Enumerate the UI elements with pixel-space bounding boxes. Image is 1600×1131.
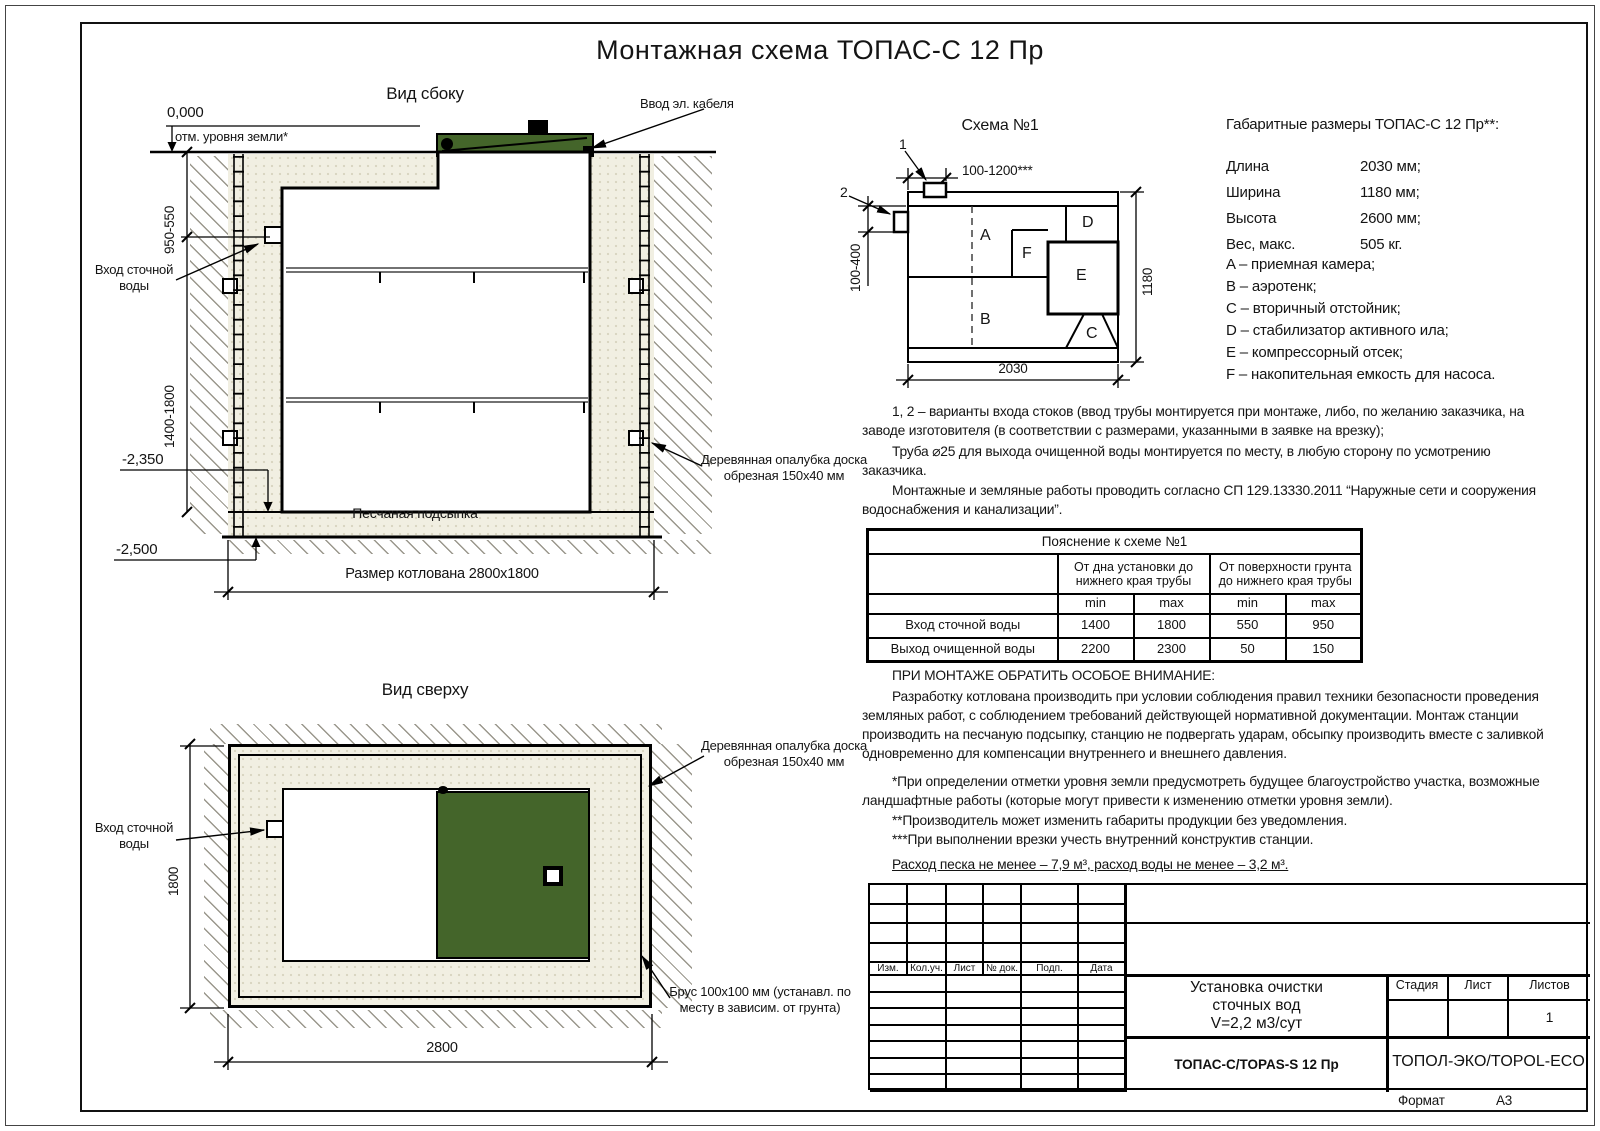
sideview-lid-cap bbox=[528, 120, 548, 134]
legend-a: A – приемная камера; bbox=[1226, 256, 1375, 274]
note-variants: 1, 2 – варианты входа стоков (ввод трубы… bbox=[862, 402, 1556, 440]
table-row: Вход сточной воды 1400 1800 550 950 bbox=[868, 614, 1362, 638]
sideview-stub-left-2 bbox=[222, 430, 238, 446]
table-min2-header: min bbox=[1210, 594, 1286, 614]
doc-title-line1: Установка очистки bbox=[1126, 979, 1387, 997]
spec-label-weight: Вес, макс. bbox=[1226, 236, 1295, 254]
table-blank-cell bbox=[868, 594, 1058, 614]
schema-dim-top: 100-1200*** bbox=[962, 163, 1033, 179]
row2-label: Выход очищенной воды bbox=[868, 638, 1058, 662]
beam-label: Брус 100x100 мм (устанавл. по месту в за… bbox=[662, 984, 858, 1016]
table-row: Выход очищенной воды 2200 2300 50 150 bbox=[868, 638, 1362, 662]
attention-body: Разработку котлована производить при усл… bbox=[862, 687, 1556, 763]
dim-2800: 2800 bbox=[230, 1040, 654, 1058]
table-min1-header: min bbox=[1058, 594, 1134, 614]
col-koluch: Кол.уч. bbox=[908, 963, 947, 976]
spec-value-weight: 505 кг. bbox=[1360, 236, 1402, 254]
sideview-stub-right-1 bbox=[628, 278, 644, 294]
model-name: ТОПАС-С/TOPAS-S 12 Пр bbox=[1126, 1057, 1387, 1072]
topview-hatch-right bbox=[652, 744, 692, 1008]
top-view-label: Вид сверху bbox=[350, 680, 500, 701]
footnote-2: **Производитель может изменить габариты … bbox=[862, 811, 1556, 830]
row1-v2: 1800 bbox=[1134, 614, 1210, 638]
sheets-value: 1 bbox=[1509, 1009, 1590, 1025]
sideview-stub-right-2 bbox=[628, 430, 644, 446]
stamp-line-2 bbox=[1124, 974, 1590, 977]
zone-e-label: E bbox=[1076, 266, 1086, 286]
row1-label: Вход сточной воды bbox=[868, 614, 1058, 638]
table-group2-header: От поверхности грунта до нижнего края тр… bbox=[1210, 554, 1362, 594]
elev-minus-2500: -2,500 bbox=[116, 541, 157, 559]
topview-green-lid bbox=[436, 791, 590, 959]
topview-lid-hatch-square bbox=[543, 866, 563, 886]
doc-title-line3: V=2,2 м3/сут bbox=[1126, 1015, 1387, 1033]
sideview-stub-left-1 bbox=[222, 278, 238, 294]
doc-title-line2: сточных вод bbox=[1126, 997, 1387, 1015]
spec-label-height: Высота bbox=[1226, 210, 1276, 228]
sideview-green-lid bbox=[436, 133, 594, 157]
spec-label-length: Длина bbox=[1226, 158, 1269, 176]
zone-a-label: A bbox=[980, 226, 990, 246]
topview-lid-dot bbox=[438, 786, 448, 794]
row2-v3: 50 bbox=[1210, 638, 1286, 662]
schema-dim-left: 100-400 bbox=[848, 244, 864, 292]
elev-minus-2350: -2,350 bbox=[122, 451, 163, 469]
revision-grid-upper bbox=[870, 885, 1126, 963]
note-mounting: Монтажные и земляные работы проводить со… bbox=[862, 481, 1556, 519]
table-title: Пояснение к схеме №1 bbox=[868, 530, 1362, 554]
table-max1-header: max bbox=[1134, 594, 1210, 614]
schema-dim-bottom: 2030 bbox=[963, 361, 1063, 377]
sand-fill-pit bbox=[228, 154, 654, 537]
zone-b-label: B bbox=[980, 310, 990, 330]
legend-d: D – стабилизатор активного ила; bbox=[1226, 322, 1449, 340]
footnote-3: ***При выполнении врезки учесть внутренн… bbox=[862, 830, 1556, 849]
sheet-header: Лист bbox=[1449, 978, 1507, 992]
stamp-line-3 bbox=[1124, 1036, 1590, 1039]
stamp-line-1 bbox=[1124, 922, 1590, 924]
topview-hatch-bottom bbox=[210, 1010, 662, 1028]
sideview-cable-entry-dot bbox=[583, 146, 592, 155]
col-izm: Изм. bbox=[870, 963, 908, 976]
formwork-label-side: Деревянная опалубка доска обрезная 150x4… bbox=[698, 452, 870, 484]
attention-title: ПРИ МОНТАЖЕ ОБРАТИТЬ ОСОБОЕ ВНИМАНИЕ: bbox=[862, 668, 1556, 685]
legend-c: C – вторичный отстойник; bbox=[1226, 300, 1401, 318]
specs-title: Габаритные размеры ТОПАС-С 12 Пр**: bbox=[1226, 116, 1499, 134]
legend-e: E – компрессорный отсек; bbox=[1226, 344, 1403, 362]
formwork-label-top: Деревянная опалубка доска обрезная 150x4… bbox=[698, 738, 870, 770]
title-block: Изм. Кол.уч. Лист № док. Подп. Дата Уста… bbox=[868, 883, 1588, 1090]
spec-value-length: 2030 мм; bbox=[1360, 158, 1421, 176]
row2-v2: 2300 bbox=[1134, 638, 1210, 662]
page-title: Монтажная схема ТОПАС-С 12 Пр bbox=[540, 34, 1100, 67]
spec-label-width: Ширина bbox=[1226, 184, 1280, 202]
legend-f: F – накопительная емкость для насоса. bbox=[1226, 366, 1495, 384]
format-label: Формат bbox=[1398, 1093, 1445, 1109]
cable-entry-label: Ввод эл. кабеля bbox=[640, 96, 734, 112]
spec-value-height: 2600 мм; bbox=[1360, 210, 1421, 228]
row1-v4: 950 bbox=[1286, 614, 1362, 638]
col-list: Лист bbox=[947, 963, 984, 976]
note-pipe: Труба ⌀25 для выхода очищенной воды монт… bbox=[862, 442, 1556, 480]
table-corner-cell bbox=[868, 554, 1058, 594]
revision-header-row: Изм. Кол.уч. Лист № док. Подп. Дата bbox=[870, 963, 1126, 976]
sheets-header: Листов bbox=[1509, 978, 1590, 992]
schema-title: Схема №1 bbox=[930, 116, 1070, 136]
sideview-inlet-stub bbox=[264, 226, 284, 244]
zone-d-label: D bbox=[1082, 213, 1093, 233]
schema-marker-1: 1 bbox=[899, 136, 907, 153]
revision-grid-lower bbox=[870, 976, 1126, 1092]
table-group1-header: От дна установки до нижнего края трубы bbox=[1058, 554, 1210, 594]
footnote-1: *При определении отметки уровня земли пр… bbox=[862, 772, 1556, 810]
elev-zero-note: отм. уровня земли* bbox=[175, 129, 288, 145]
elev-zero: 0,000 bbox=[167, 104, 204, 122]
topview-hatch-left bbox=[204, 744, 228, 1008]
stamp-line-stage bbox=[1386, 999, 1590, 1001]
legend-b: B – аэротенк; bbox=[1226, 278, 1317, 296]
topview-inlet-stub bbox=[266, 820, 284, 838]
row2-v4: 150 bbox=[1286, 638, 1362, 662]
company-name: ТОПОЛ-ЭКО/TOPOL-ECO bbox=[1387, 1053, 1590, 1071]
stage-header: Стадия bbox=[1387, 978, 1447, 992]
dim-950-550: 950-550 bbox=[162, 206, 178, 254]
consumption-note: Расход песка не менее – 7,9 м³, расход в… bbox=[862, 857, 1556, 874]
col-data: Дата bbox=[1079, 963, 1126, 976]
dim-1400-1800: 1400-1800 bbox=[162, 385, 178, 448]
soil-hatch-left bbox=[190, 156, 228, 534]
table-max2-header: max bbox=[1286, 594, 1362, 614]
drawing-sheet: Монтажная схема ТОПАС-С 12 Пр Вид сбоку … bbox=[0, 0, 1600, 1131]
pit-dimension-label: Размер котлована 2800x1800 bbox=[230, 566, 654, 584]
side-view-label: Вид сбоку bbox=[350, 84, 500, 105]
zone-c-label: C bbox=[1086, 324, 1097, 344]
soil-hatch-bottom bbox=[228, 540, 712, 554]
row1-v1: 1400 bbox=[1058, 614, 1134, 638]
schema-dim-right: 1180 bbox=[1140, 268, 1156, 296]
sand-label: Песчаная подсыпка bbox=[265, 505, 565, 522]
row2-v1: 2200 bbox=[1058, 638, 1134, 662]
schema-marker-2: 2 bbox=[840, 184, 848, 201]
col-podp: Подп. bbox=[1022, 963, 1079, 976]
zone-f-label: F bbox=[1022, 244, 1032, 264]
format-value: А3 bbox=[1496, 1093, 1512, 1109]
row1-v3: 550 bbox=[1210, 614, 1286, 638]
explanation-table: Пояснение к схеме №1 От дна установки до… bbox=[866, 528, 1363, 663]
inlet-label-top: Вход сточной воды bbox=[84, 820, 184, 852]
dim-1800: 1800 bbox=[166, 867, 182, 896]
topview-hatch-top bbox=[210, 724, 662, 744]
col-ndok: № док. bbox=[984, 963, 1022, 976]
inlet-label-side: Вход сточной воды bbox=[84, 262, 184, 294]
spec-value-width: 1180 мм; bbox=[1360, 184, 1420, 202]
